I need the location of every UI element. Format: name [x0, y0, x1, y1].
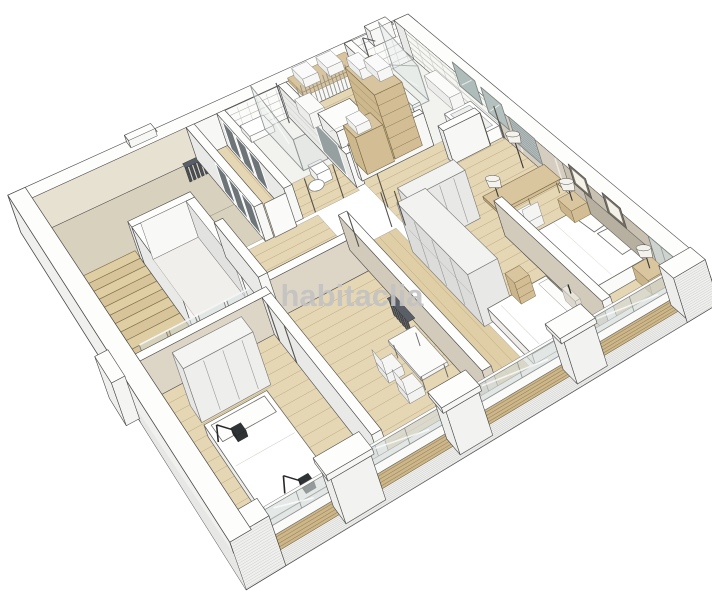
- svg-text:habitaclia: habitaclia: [281, 278, 425, 313]
